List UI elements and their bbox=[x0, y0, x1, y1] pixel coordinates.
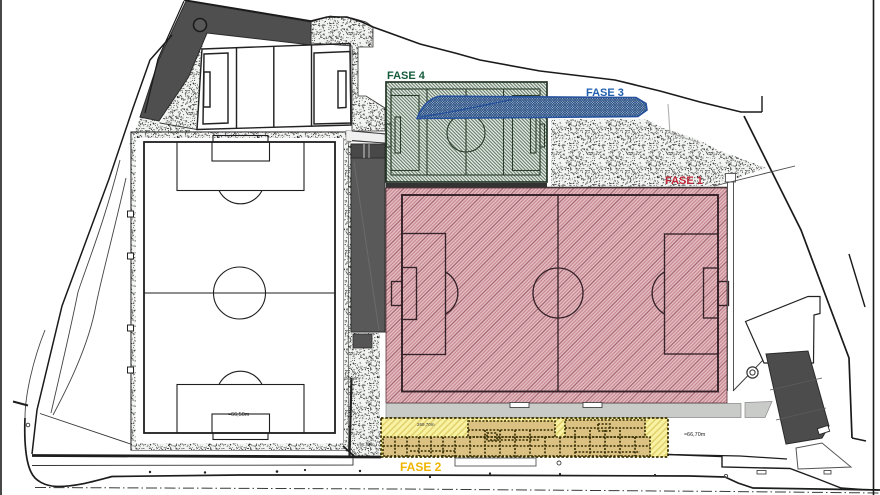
svg-text:FASE 1: FASE 1 bbox=[665, 175, 703, 187]
svg-text:FASE 4: FASE 4 bbox=[387, 70, 426, 82]
svg-text:≈66,50m: ≈66,50m bbox=[228, 412, 250, 418]
svg-text:FASE 3: FASE 3 bbox=[586, 87, 624, 99]
svg-text:≈66,70m: ≈66,70m bbox=[684, 432, 706, 438]
svg-text:≈98,90m: ≈98,90m bbox=[357, 442, 375, 447]
svg-text:Ø 350m: Ø 350m bbox=[344, 376, 360, 381]
svg-text:269,70m: 269,70m bbox=[417, 422, 435, 427]
svg-text:FASE 2: FASE 2 bbox=[400, 460, 442, 474]
